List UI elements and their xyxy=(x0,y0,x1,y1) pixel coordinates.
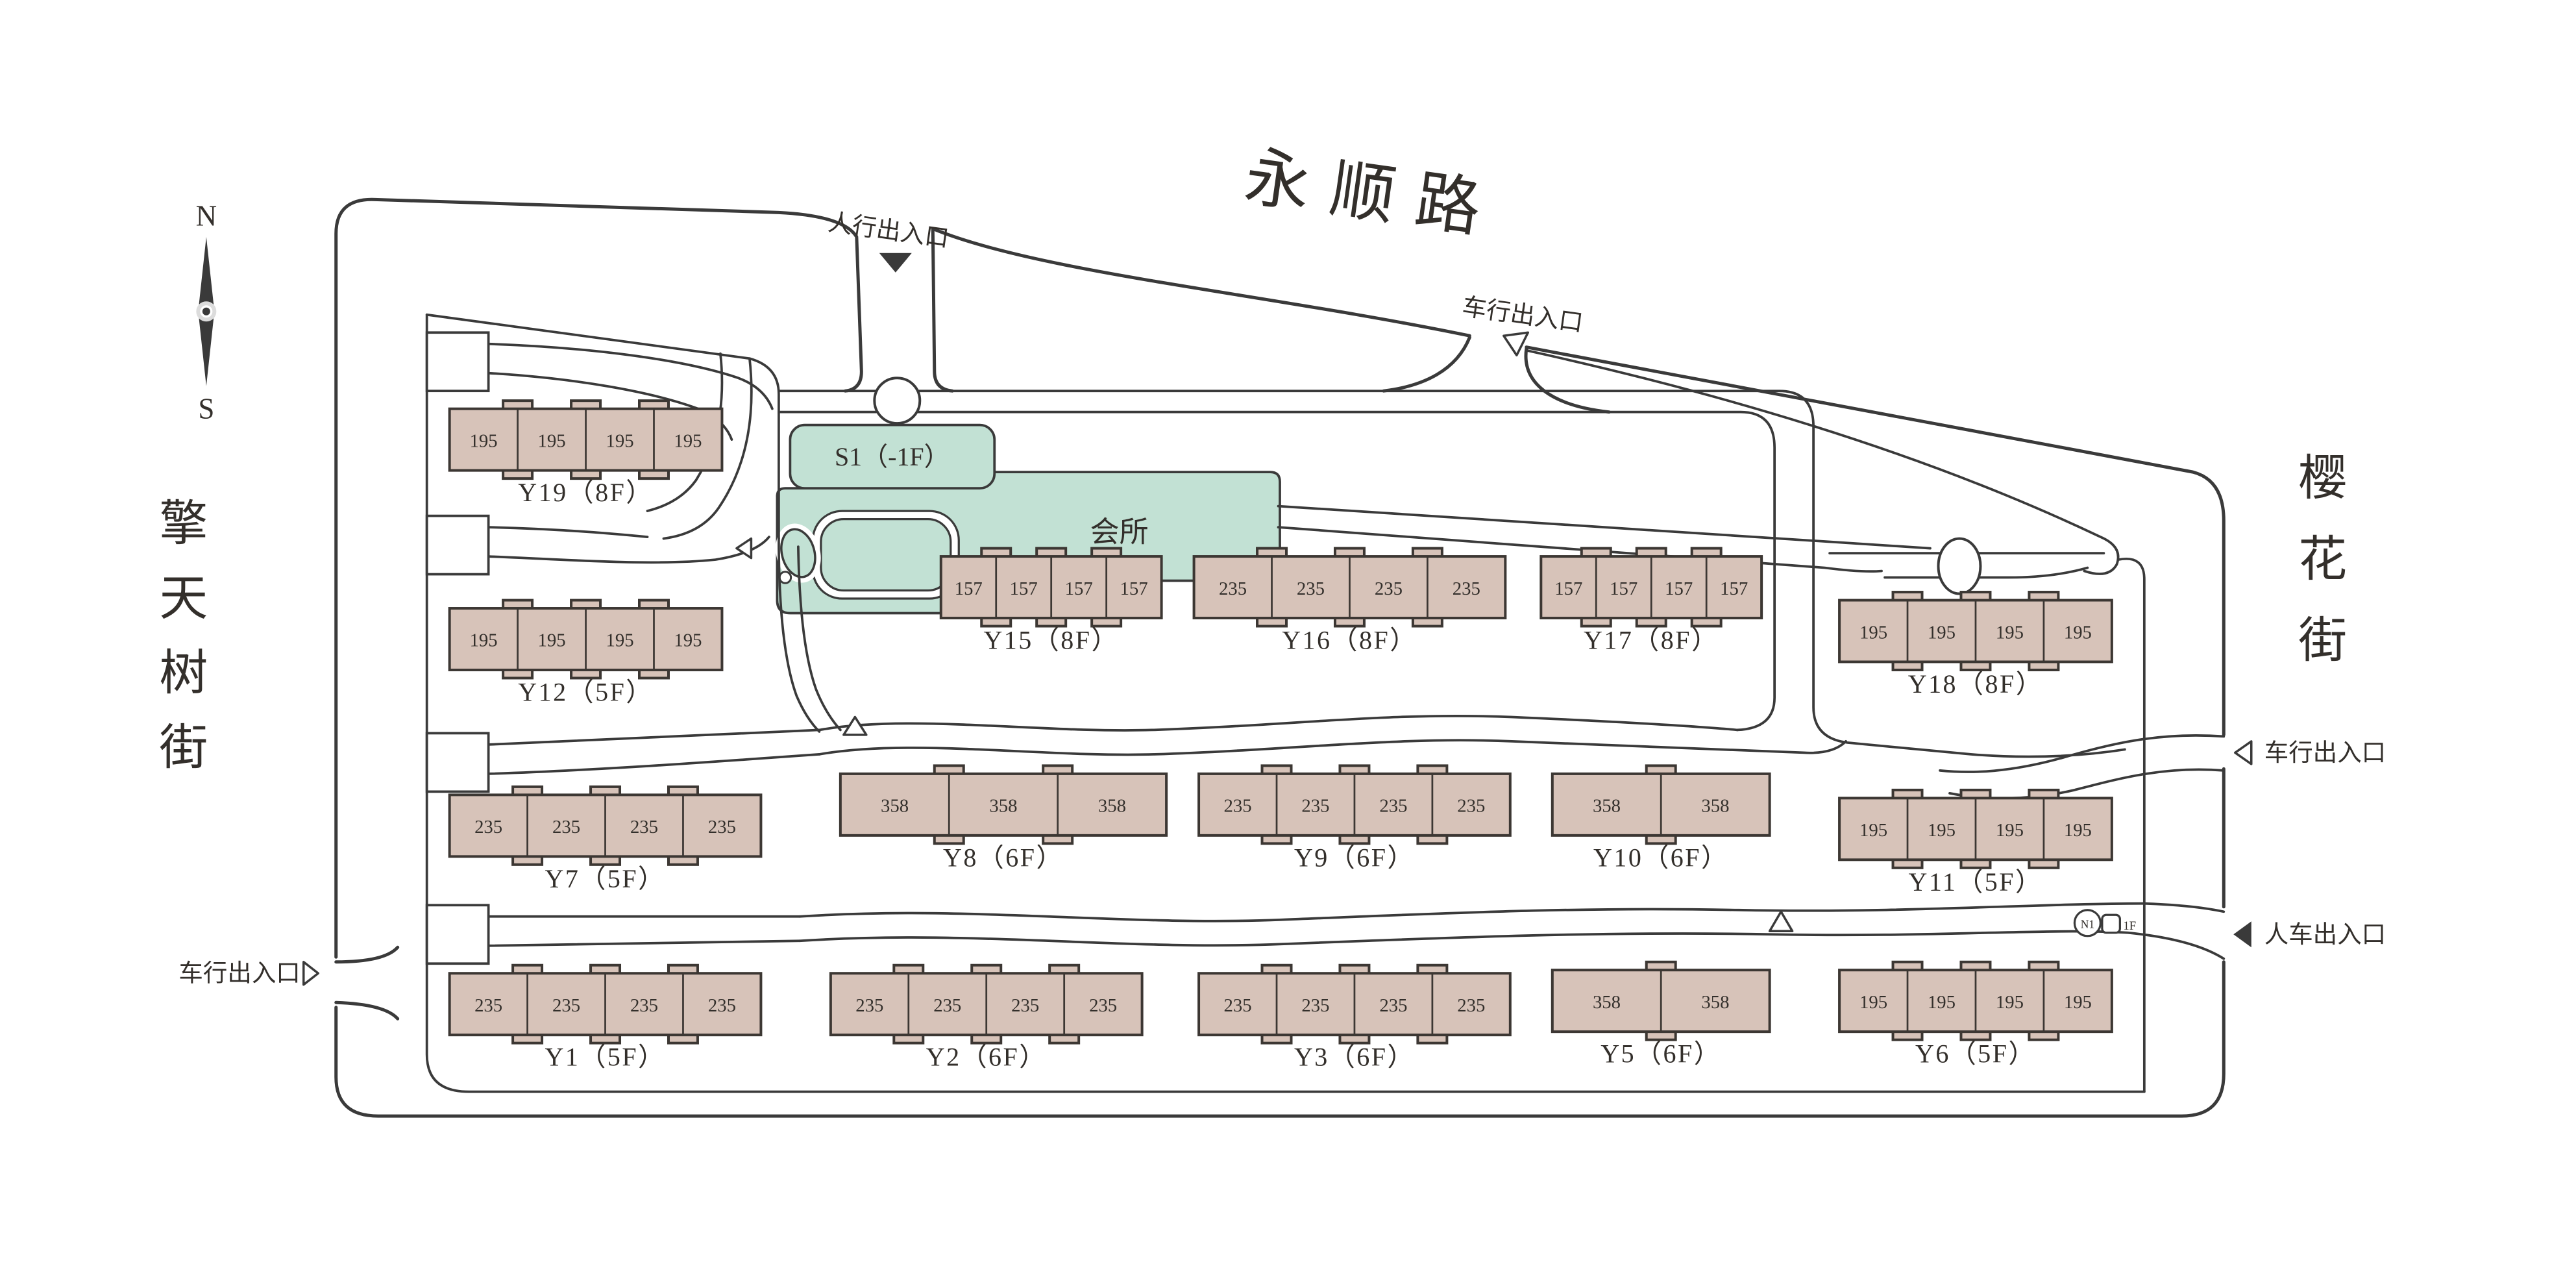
unit-area-label: 235 xyxy=(933,995,961,1016)
building-Y12: 195195195195Y12（5F） xyxy=(450,601,722,707)
unit-area-label: 358 xyxy=(1593,796,1621,817)
n1-box-label: 1F xyxy=(2123,919,2136,933)
unit-area-label: 195 xyxy=(1996,992,2024,1013)
building-name-label: Y19（8F） xyxy=(518,478,653,507)
building-name-label: Y17（8F） xyxy=(1584,625,1719,654)
stub-2 xyxy=(427,516,489,575)
building-name-label: Y6（5F） xyxy=(1915,1039,2036,1069)
clubhouse-label: 会所 xyxy=(1090,516,1149,549)
unit-area-label: 195 xyxy=(1928,820,1956,841)
building-Y3: 235235235235Y3（6F） xyxy=(1199,965,1510,1072)
unit-area-label: 195 xyxy=(1928,992,1956,1013)
building-Y7: 235235235235Y7（5F） xyxy=(450,787,761,893)
site-plan-page: 235235235235Y1（5F）235235235235Y2（6F）2352… xyxy=(0,0,2576,1288)
unit-area-label: 195 xyxy=(1859,992,1887,1013)
entrance-vehicle-left-label: 车行出入口 xyxy=(178,960,300,987)
entrance-vehicle-right-label: 车行出入口 xyxy=(2264,739,2386,767)
unit-area-label: 235 xyxy=(1457,995,1485,1016)
building-Y11: 195195195195Y11（5F） xyxy=(1839,790,2112,897)
unit-area-label: 358 xyxy=(1593,992,1621,1013)
unit-area-label: 235 xyxy=(630,995,658,1016)
clubhouse-ring-inner xyxy=(821,519,951,591)
unit-area-label: 195 xyxy=(1859,622,1887,643)
site-plan: 235235235235Y1（5F）235235235235Y2（6F）2352… xyxy=(0,0,2576,1288)
unit-area-label: 358 xyxy=(1098,796,1126,817)
entrance-pedestrian-top-label: 人行出入口 xyxy=(826,209,950,253)
street-name-left: 擎天树街 xyxy=(159,497,208,775)
building-Y10: 358358Y10（6F） xyxy=(1552,765,1770,872)
unit-area-label: 195 xyxy=(470,630,498,651)
building-name-label: Y2（6F） xyxy=(926,1043,1047,1072)
unit-area-label: 235 xyxy=(1223,995,1251,1016)
vehicle-entrance-top-icon xyxy=(1504,332,1528,355)
mixed-entrance-right-icon xyxy=(2233,921,2251,947)
unit-area-label: 195 xyxy=(674,630,702,651)
unit-area-label: 235 xyxy=(1379,796,1407,817)
building-name-label: Y15（8F） xyxy=(983,625,1118,654)
unit-area-label: 235 xyxy=(552,817,580,837)
unit-area-label: 157 xyxy=(1610,578,1638,599)
building-Y18: 195195195195Y18（8F） xyxy=(1839,592,2112,699)
unit-area-label: 195 xyxy=(1996,622,2024,643)
unit-area-label: 235 xyxy=(855,995,883,1016)
vehicle-entrance-left-icon xyxy=(304,962,318,985)
compass-south-label: S xyxy=(198,393,214,425)
building-Y5: 358358Y5（6F） xyxy=(1552,962,1770,1069)
building-name-label: Y5（6F） xyxy=(1601,1039,1721,1069)
unit-area-label: 157 xyxy=(1554,578,1582,599)
unit-area-label: 235 xyxy=(1089,995,1117,1016)
unit-area-label: 195 xyxy=(2064,622,2092,643)
building-Y17: 157157157157Y17（8F） xyxy=(1541,549,1761,655)
unit-area-label: 157 xyxy=(1720,578,1748,599)
unit-area-label: 195 xyxy=(2064,992,2092,1013)
unit-area-label: 235 xyxy=(1375,578,1403,599)
pond-dot xyxy=(779,572,791,583)
unit-area-label: 195 xyxy=(2064,820,2092,841)
unit-area-label: 157 xyxy=(1065,578,1093,599)
building-Y19: 195195195195Y19（8F） xyxy=(450,401,722,507)
unit-area-label: 235 xyxy=(708,995,736,1016)
unit-area-label: 195 xyxy=(1859,820,1887,841)
unit-area-label: 358 xyxy=(881,796,909,817)
stub-1 xyxy=(427,332,489,391)
street-name-right: 樱花街 xyxy=(2298,452,2347,668)
vehicle-entrance-right-icon xyxy=(2235,741,2251,764)
building-name-label: Y1（5F） xyxy=(545,1043,666,1072)
stub-3 xyxy=(427,733,489,791)
building-name-label: Y10（6F） xyxy=(1593,843,1728,872)
building-name-label: Y16（8F） xyxy=(1282,625,1417,654)
pedestrian-entrance-icon xyxy=(879,253,912,273)
unit-area-label: 195 xyxy=(538,630,566,651)
building-Y1: 235235235235Y1（5F） xyxy=(450,965,761,1072)
roundabout-east xyxy=(1938,539,1980,594)
building-name-label: Y18（8F） xyxy=(1908,669,2043,699)
unit-area-label: 235 xyxy=(1011,995,1039,1016)
unit-area-label: 235 xyxy=(1457,796,1485,817)
building-Y16: 235235235235Y16（8F） xyxy=(1194,549,1506,655)
unit-area-label: 157 xyxy=(1120,578,1148,599)
building-Y6: 195195195195Y6（5F） xyxy=(1839,962,2112,1069)
n1-circle-label: N1 xyxy=(2081,917,2094,930)
unit-area-label: 235 xyxy=(474,817,502,837)
compass: N S xyxy=(196,199,217,425)
building-name-label: Y7（5F） xyxy=(545,864,666,893)
unit-area-label: 235 xyxy=(474,995,502,1016)
unit-area-label: 358 xyxy=(1701,796,1729,817)
building-name-label: Y12（5F） xyxy=(518,677,653,706)
unit-area-label: 235 xyxy=(1301,796,1329,817)
unit-area-label: 195 xyxy=(674,430,702,451)
unit-area-label: 235 xyxy=(1223,796,1251,817)
unit-area-label: 235 xyxy=(1219,578,1247,599)
unit-area-label: 195 xyxy=(606,430,633,451)
building-name-label: Y3（6F） xyxy=(1294,1043,1415,1072)
s1-label: S1（-1F） xyxy=(835,442,950,471)
road-name-top: 永顺路 xyxy=(1240,141,1506,248)
unit-area-label: 235 xyxy=(1379,995,1407,1016)
unit-area-label: 235 xyxy=(1297,578,1325,599)
unit-area-label: 235 xyxy=(1301,995,1329,1016)
unit-area-label: 195 xyxy=(606,630,633,651)
building-Y9: 235235235235Y9（6F） xyxy=(1199,765,1510,872)
entrance-mixed-right-label: 人车出入口 xyxy=(2264,921,2386,948)
unit-area-label: 157 xyxy=(955,578,983,599)
building-name-label: Y8（6F） xyxy=(943,843,1064,872)
unit-area-label: 195 xyxy=(538,430,566,451)
unit-area-label: 195 xyxy=(1996,820,2024,841)
n1-marker: N1 1F xyxy=(2074,910,2136,936)
unit-area-label: 235 xyxy=(630,817,658,837)
building-name-label: Y9（6F） xyxy=(1294,843,1415,872)
unit-area-label: 235 xyxy=(1453,578,1480,599)
unit-area-label: 358 xyxy=(1701,992,1729,1013)
stub-4 xyxy=(427,905,489,963)
compass-north-label: N xyxy=(196,199,217,232)
unit-area-label: 235 xyxy=(708,817,736,837)
road-marker-triangle-east xyxy=(1770,911,1793,931)
n1-box-icon xyxy=(2102,915,2120,932)
building-Y15: 157157157157Y15（8F） xyxy=(941,549,1162,655)
unit-area-label: 157 xyxy=(1010,578,1038,599)
building-Y8: 358358358Y8（6F） xyxy=(840,765,1166,872)
compass-hub-dot xyxy=(202,308,210,316)
unit-area-label: 195 xyxy=(1928,622,1956,643)
unit-area-label: 235 xyxy=(552,995,580,1016)
unit-area-label: 195 xyxy=(470,430,498,451)
roundabout-north xyxy=(874,378,920,423)
unit-area-label: 157 xyxy=(1665,578,1693,599)
building-Y2: 235235235235Y2（6F） xyxy=(831,965,1142,1072)
unit-area-label: 358 xyxy=(989,796,1017,817)
building-name-label: Y11（5F） xyxy=(1908,867,2042,897)
entrance-vehicle-top-label: 车行出入口 xyxy=(1460,293,1584,338)
